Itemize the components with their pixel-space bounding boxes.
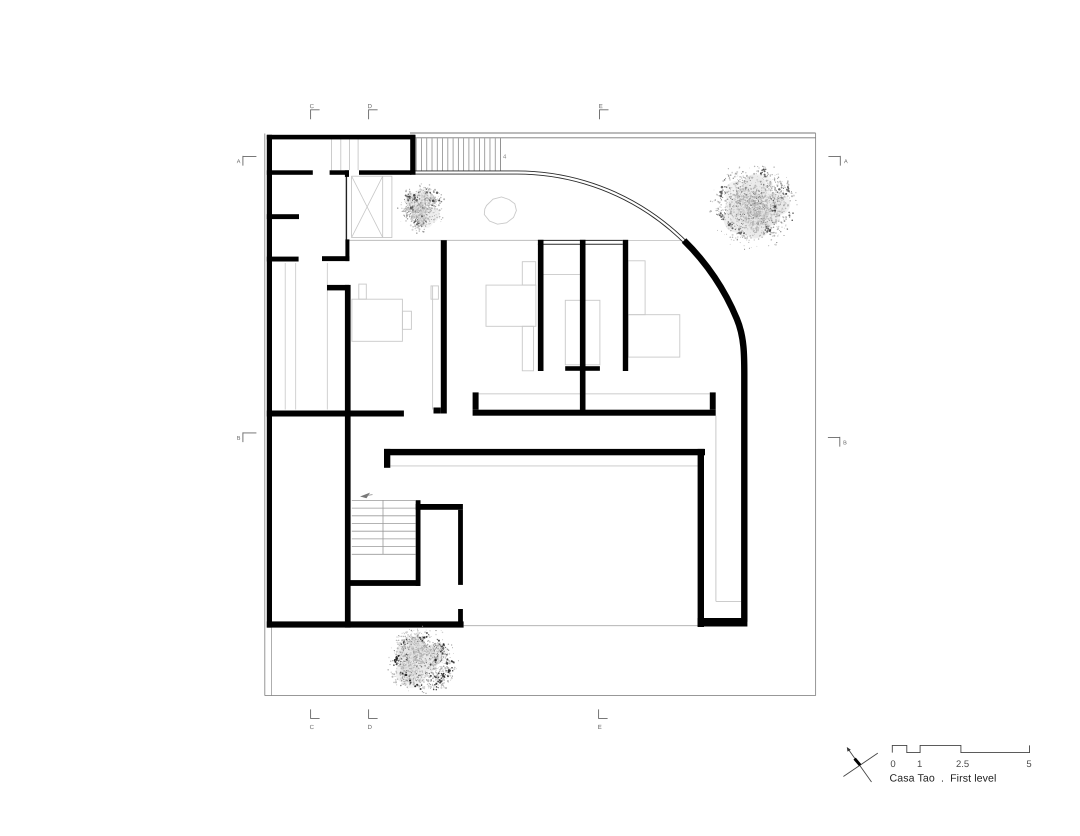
svg-text:5: 5 (1026, 759, 1031, 770)
svg-text:0: 0 (890, 759, 895, 770)
svg-text:D: D (368, 104, 373, 110)
svg-text:C: C (310, 725, 315, 731)
svg-text:Casa Tao . First level: Casa Tao . First level (889, 773, 996, 785)
svg-text:A: A (237, 159, 241, 165)
svg-text:A: A (844, 159, 848, 165)
svg-text:B: B (843, 440, 847, 446)
svg-text:1: 1 (917, 759, 922, 770)
svg-text:E: E (599, 104, 603, 110)
svg-text:2.5: 2.5 (956, 759, 969, 770)
svg-text:C: C (310, 104, 315, 110)
svg-text:E: E (598, 725, 602, 731)
svg-text:D: D (368, 725, 373, 731)
svg-text:B: B (237, 436, 241, 442)
